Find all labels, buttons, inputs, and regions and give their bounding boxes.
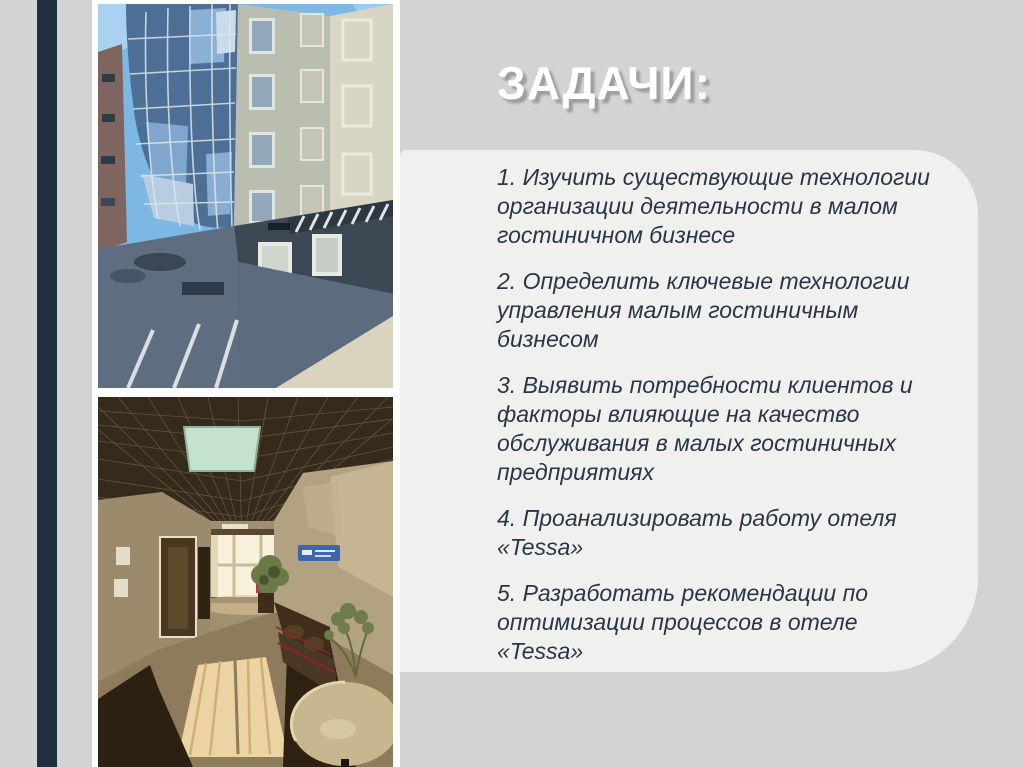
- task-item-3: 3. Выявить потребности клиентов и фактор…: [497, 371, 945, 487]
- building-photo-svg: [98, 4, 393, 388]
- task-item-5: 5. Разработать рекомендации по оптимизац…: [497, 579, 945, 666]
- task-item-2: 2. Определить ключевые технологии управл…: [497, 267, 945, 354]
- task-item-4: 4. Проанализировать работу отеля «Tessa»: [497, 504, 945, 562]
- interior-photo: [98, 397, 393, 767]
- accent-navy-bar: [37, 0, 57, 767]
- left-gray-stripe-2: [57, 0, 92, 767]
- left-gray-stripe: [0, 0, 37, 767]
- building-photo: [98, 4, 393, 388]
- presentation-slide: ЗАДАЧИ: 1. Изучить существующие технолог…: [0, 0, 1024, 767]
- interior-photo-svg: [98, 397, 393, 767]
- task-item-1: 1. Изучить существующие технологии орган…: [497, 163, 945, 250]
- slide-title: ЗАДАЧИ:: [497, 60, 711, 106]
- task-list: 1. Изучить существующие технологии орган…: [497, 163, 945, 683]
